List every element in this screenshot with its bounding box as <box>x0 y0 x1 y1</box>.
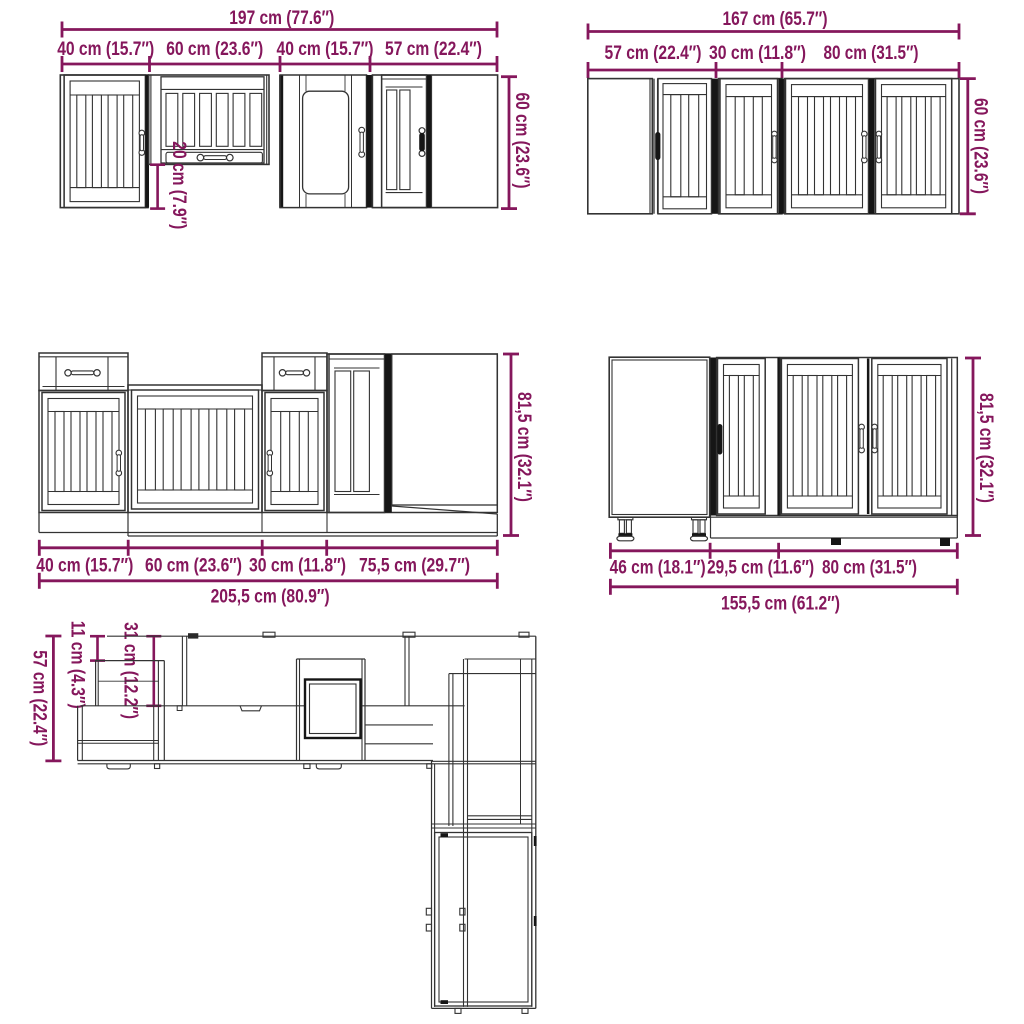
svg-text:57 cm (22.4″): 57 cm (22.4″) <box>28 650 49 746</box>
svg-text:40 cm (15.7″): 40 cm (15.7″) <box>57 39 154 60</box>
svg-text:20 cm (7.9″): 20 cm (7.9″) <box>168 141 189 229</box>
svg-text:29,5 cm (11.6″): 29,5 cm (11.6″) <box>707 557 814 578</box>
svg-text:57 cm (22.4″): 57 cm (22.4″) <box>605 43 702 64</box>
svg-text:46 cm (18.1″): 46 cm (18.1″) <box>610 557 706 578</box>
svg-text:197 cm (77.6″): 197 cm (77.6″) <box>229 8 334 29</box>
svg-text:205,5 cm (80.9″): 205,5 cm (80.9″) <box>211 587 330 608</box>
svg-text:11 cm (4.3″): 11 cm (4.3″) <box>66 621 87 709</box>
svg-text:81,5 cm (32.1″): 81,5 cm (32.1″) <box>513 392 534 502</box>
svg-text:167 cm (65.7″): 167 cm (65.7″) <box>723 9 828 30</box>
svg-text:60 cm (23.6″): 60 cm (23.6″) <box>511 93 532 189</box>
svg-text:40 cm (15.7″): 40 cm (15.7″) <box>36 556 133 577</box>
svg-text:60 cm (23.6″): 60 cm (23.6″) <box>970 98 991 194</box>
svg-text:75,5 cm (29.7″): 75,5 cm (29.7″) <box>359 556 470 577</box>
svg-text:30 cm (11.8″): 30 cm (11.8″) <box>249 556 346 577</box>
svg-text:57 cm (22.4″): 57 cm (22.4″) <box>385 39 482 60</box>
svg-text:155,5 cm (61.2″): 155,5 cm (61.2″) <box>721 593 840 614</box>
svg-text:81,5 cm (32.1″): 81,5 cm (32.1″) <box>975 393 996 503</box>
svg-text:80 cm (31.5″): 80 cm (31.5″) <box>822 557 917 578</box>
svg-text:60 cm (23.6″): 60 cm (23.6″) <box>166 39 263 60</box>
svg-text:30 cm (11.8″): 30 cm (11.8″) <box>709 43 806 64</box>
svg-text:40 cm (15.7″): 40 cm (15.7″) <box>277 39 374 60</box>
svg-text:60 cm (23.6″): 60 cm (23.6″) <box>145 556 242 577</box>
svg-text:80 cm (31.5″): 80 cm (31.5″) <box>824 43 919 64</box>
